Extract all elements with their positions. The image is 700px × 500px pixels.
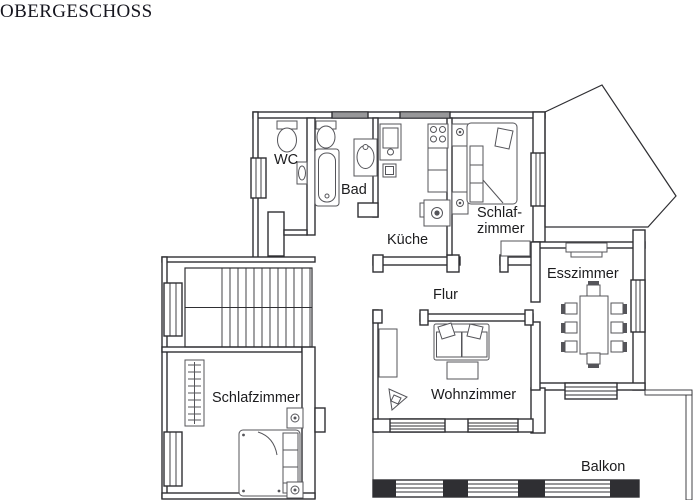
wall-living-left <box>373 310 378 432</box>
stairs-lower-treads <box>222 307 310 347</box>
room-label-balkon: Balkon <box>581 459 625 475</box>
wall-wc-right <box>307 118 315 235</box>
wall-dining-left-lower <box>531 322 540 390</box>
double-bed-icon <box>467 123 517 204</box>
hand-basin-icon <box>297 162 307 184</box>
kitchen-island-icon <box>420 200 450 226</box>
kitchen-counter <box>428 148 447 192</box>
window-bedroom-bottom-left <box>164 432 182 486</box>
roof-outline <box>545 85 676 227</box>
window-living-2 <box>468 419 518 432</box>
balcony-parapet <box>373 480 639 497</box>
room-label-esszimmer: Esszimmer <box>547 266 619 282</box>
sideboard-icon <box>566 243 607 257</box>
kitchen-sink-icon <box>380 124 401 177</box>
balcony-rail-right <box>686 392 692 500</box>
wall-bedroom-top <box>162 347 302 352</box>
shelf-icon <box>379 329 397 377</box>
wall-dining-left-upper <box>531 242 540 302</box>
wall-hall-living <box>420 314 533 321</box>
window-top-2 <box>400 112 450 118</box>
balcony-door-steps <box>565 383 617 399</box>
room-label-bad: Bad <box>341 182 367 198</box>
window-left-upper <box>251 158 266 198</box>
jamb-hall-living-right <box>525 310 533 325</box>
sofa-icon <box>434 323 489 360</box>
window-living-1 <box>390 419 445 432</box>
bathtub-icon <box>315 149 339 206</box>
jamb-bedroomtop-door <box>500 255 508 272</box>
stairs-upper-treads <box>222 268 310 307</box>
nightstand-icon <box>287 408 303 428</box>
jamb-kitchen-left <box>373 255 383 272</box>
speaker-icon <box>389 389 407 410</box>
window-top-1 <box>332 112 368 118</box>
window-stairwell <box>164 283 182 336</box>
wall-bedroom-right <box>302 347 315 498</box>
washbasin-icon <box>354 139 377 176</box>
room-label-schlafzimmer-top-1: Schlaf- <box>477 205 522 221</box>
wall-living-left-jamb <box>373 310 382 323</box>
stairs <box>185 268 312 347</box>
room-label-schlafzimmer-top-2: zimmer <box>477 221 525 237</box>
wall-bath-bottom <box>358 203 378 217</box>
wall-bedroom-right-jog <box>315 408 325 432</box>
room-label-wc: WC <box>274 152 298 168</box>
wardrobe-icon <box>185 360 204 426</box>
duct-shaft <box>268 212 284 256</box>
floorplan-page: OBERGESCHOSS <box>0 0 700 500</box>
nightstand-icon <box>452 192 468 214</box>
wall-top <box>253 112 545 118</box>
room-label-schlafzimmer-bottom: Schlafzimmer <box>212 390 300 406</box>
wall-wc-bottom <box>284 230 307 235</box>
wall-stairwell-top <box>162 257 315 262</box>
toilet-icon <box>277 121 297 152</box>
window-bedroom-top-right <box>531 153 545 206</box>
nightstand-icon <box>452 124 468 146</box>
stove-icon <box>428 124 448 148</box>
room-label-wohnzimmer: Wohnzimmer <box>431 387 516 403</box>
floorplan-drawing: WC Bad Küche Schlaf- zimmer Esszimmer Fl… <box>0 0 700 500</box>
room-label-kueche: Küche <box>387 232 428 248</box>
balcony-rail-top <box>645 390 692 395</box>
windows <box>164 112 645 486</box>
dining-table-icon <box>580 296 608 354</box>
bedroom-bottom <box>185 360 303 498</box>
jamb-hall-living-left <box>420 310 428 325</box>
jamb-kitchen-right <box>447 255 459 272</box>
coffee-table-icon <box>447 362 478 379</box>
dining-room <box>561 243 627 368</box>
kitchen <box>380 124 450 226</box>
toilet-icon <box>316 121 336 148</box>
room-label-flur: Flur <box>433 287 458 303</box>
window-dining-right <box>631 280 645 332</box>
nightstand-icon <box>287 482 303 498</box>
dresser-icon <box>501 241 530 256</box>
